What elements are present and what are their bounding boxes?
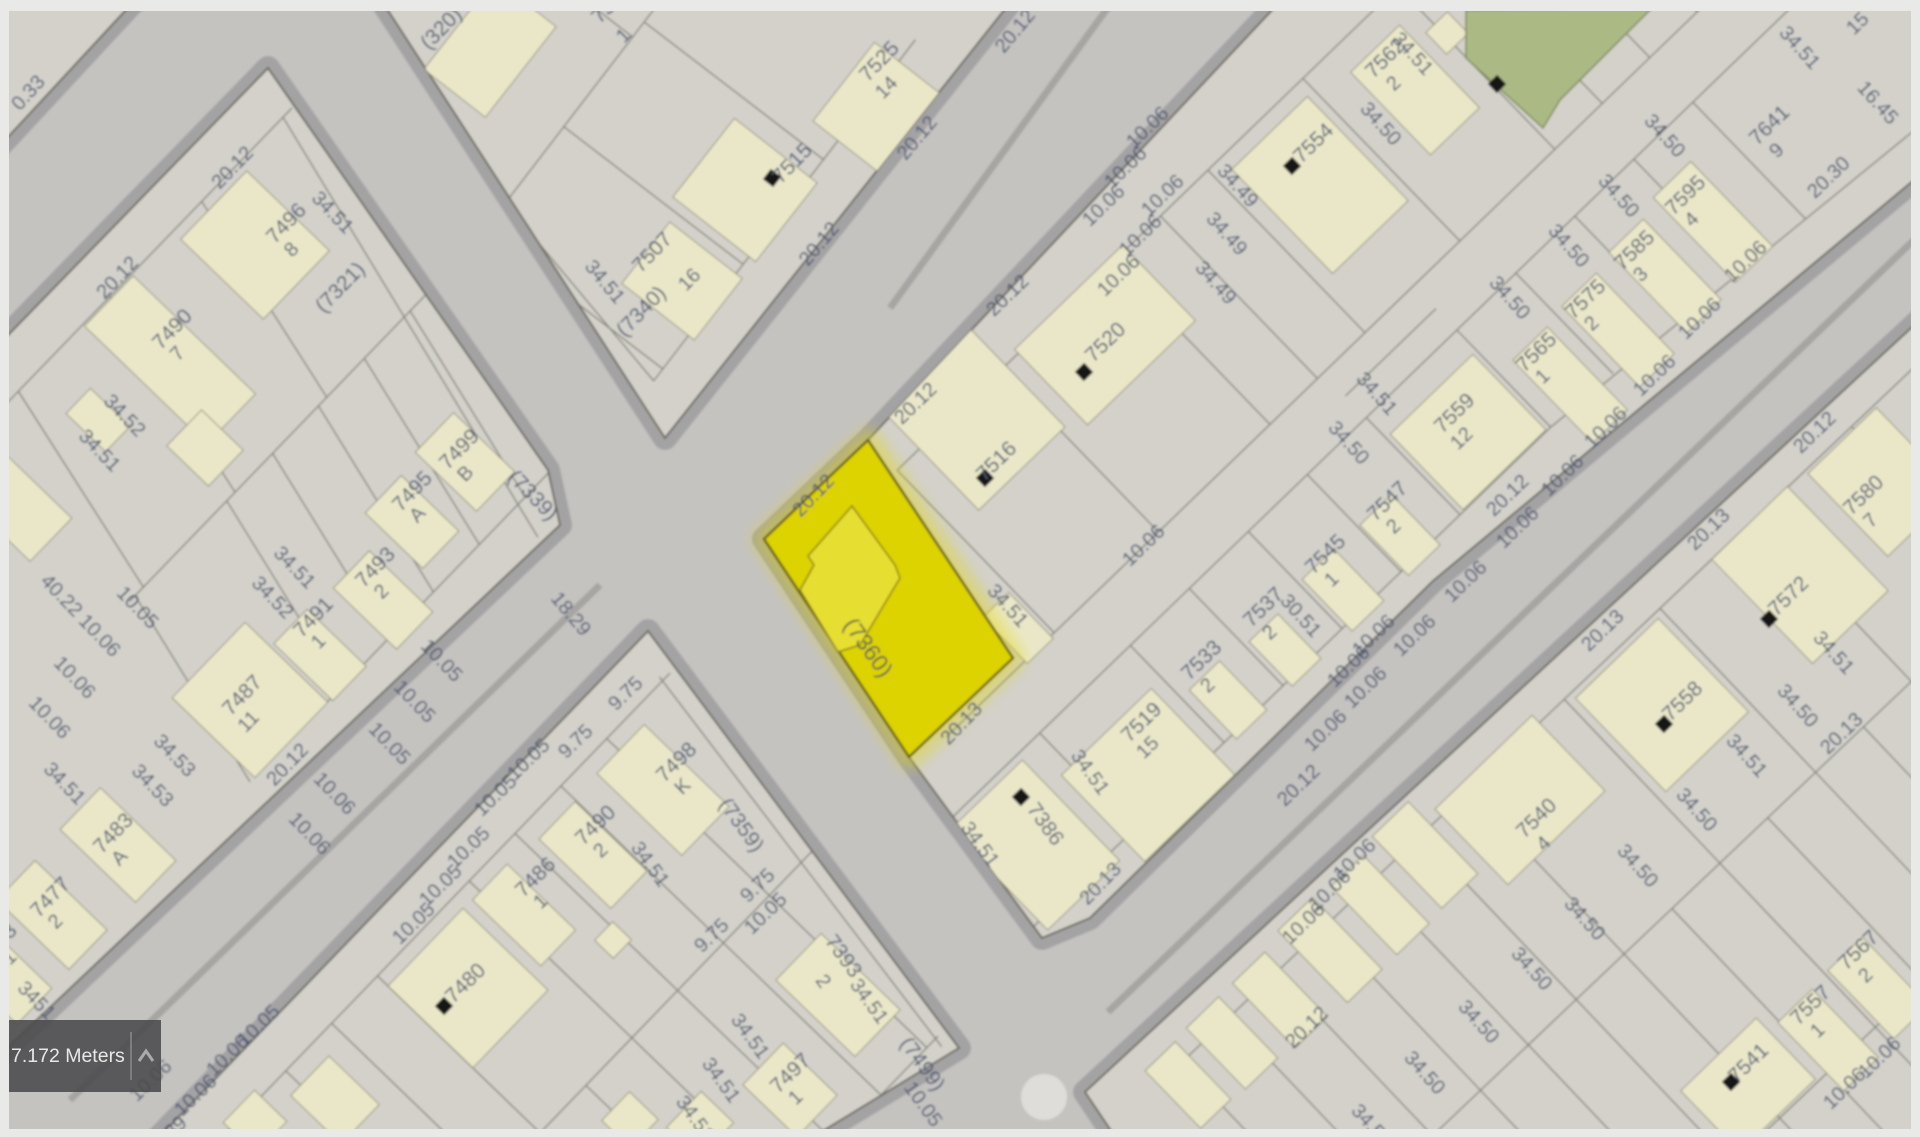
svg-text:7.172 Meters: 7.172 Meters [11,1045,125,1067]
